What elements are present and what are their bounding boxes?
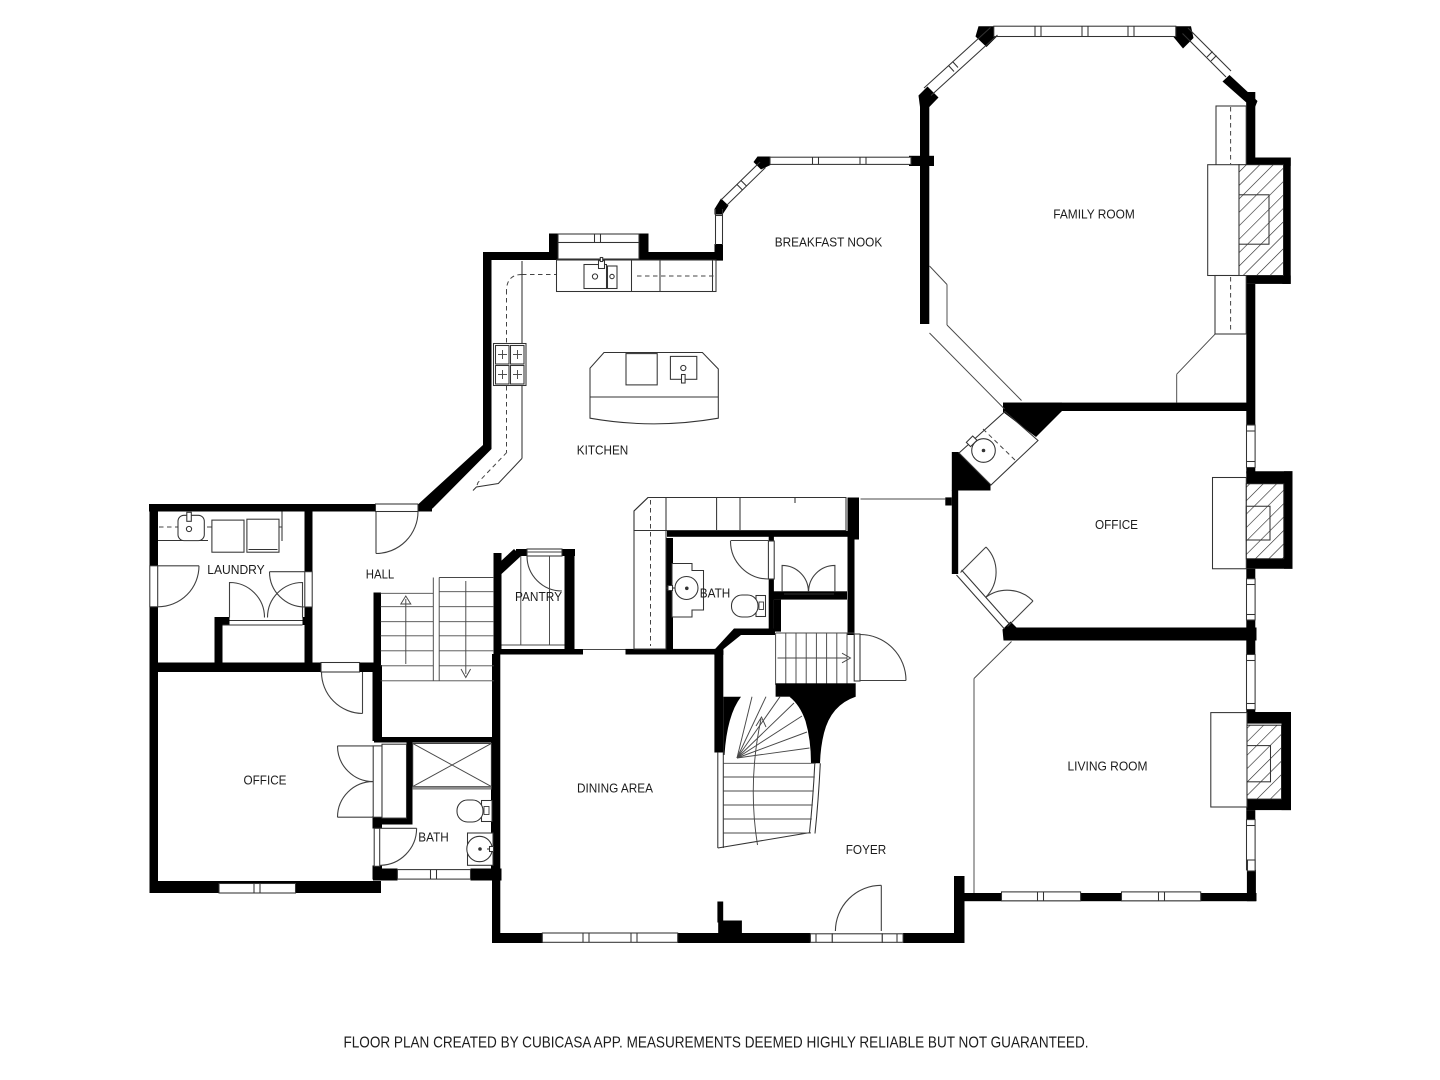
svg-text:LAUNDRY: LAUNDRY	[207, 562, 265, 577]
svg-text:FOYER: FOYER	[846, 842, 887, 857]
svg-text:DINING AREA: DINING AREA	[577, 781, 653, 796]
svg-text:KITCHEN: KITCHEN	[577, 443, 629, 458]
svg-text:BATH: BATH	[700, 586, 731, 601]
svg-text:OFFICE: OFFICE	[1095, 517, 1138, 532]
svg-text:PANTRY: PANTRY	[515, 589, 562, 604]
svg-text:HALL: HALL	[366, 566, 395, 581]
svg-text:LIVING ROOM: LIVING ROOM	[1068, 759, 1148, 774]
svg-text:OFFICE: OFFICE	[244, 773, 287, 788]
svg-text:FLOOR PLAN CREATED BY CUBICASA: FLOOR PLAN CREATED BY CUBICASA APP. MEAS…	[344, 1035, 1089, 1052]
svg-text:FAMILY ROOM: FAMILY ROOM	[1053, 206, 1135, 221]
svg-text:BATH: BATH	[418, 830, 449, 845]
svg-text:BREAKFAST NOOK: BREAKFAST NOOK	[775, 235, 883, 250]
